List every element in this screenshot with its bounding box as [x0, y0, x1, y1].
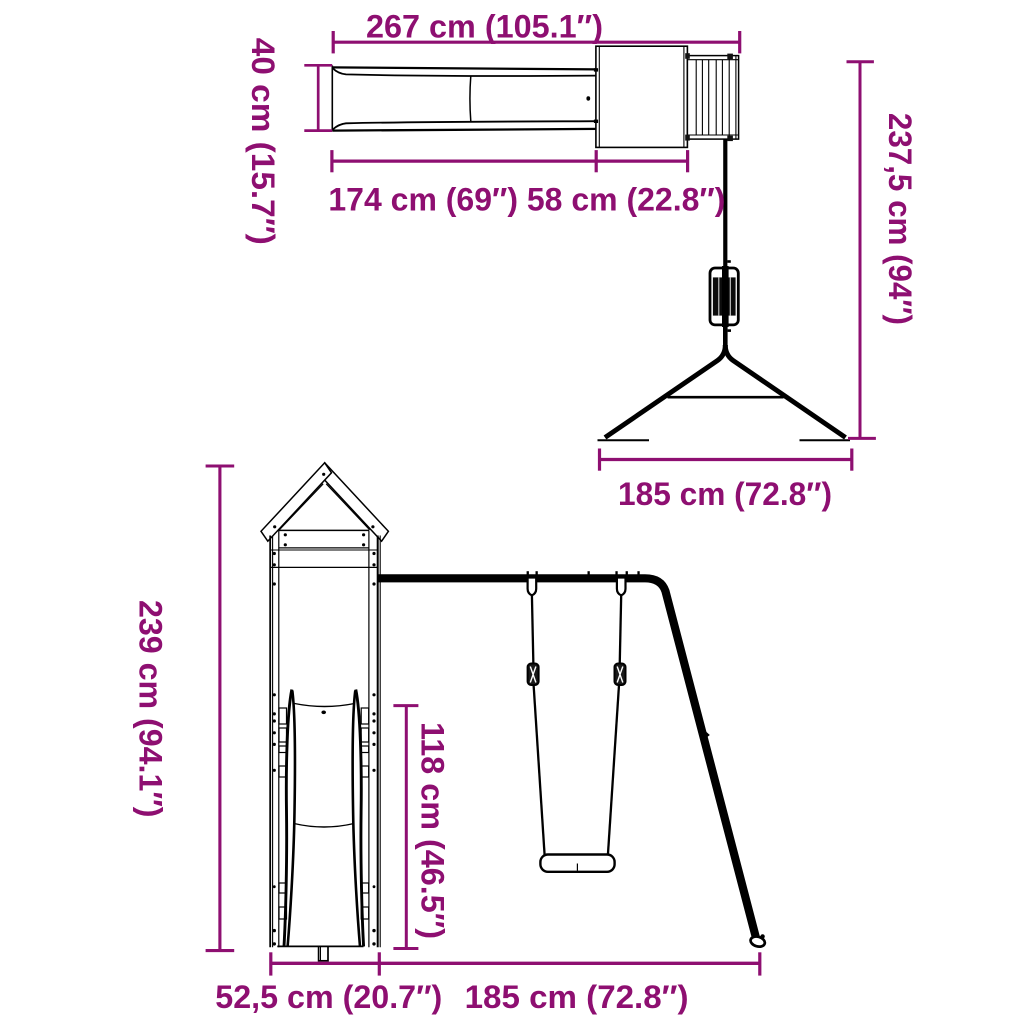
svg-text:185 cm (72.8″): 185 cm (72.8″): [618, 476, 832, 512]
svg-text:267 cm (105.1″): 267 cm (105.1″): [366, 9, 603, 45]
svg-text:52,5 cm (20.7″): 52,5 cm (20.7″): [215, 979, 442, 1015]
svg-text:174 cm (69″) 58 cm (22.8″): 174 cm (69″) 58 cm (22.8″): [328, 181, 725, 217]
svg-text:239 cm (94.1″): 239 cm (94.1″): [133, 600, 169, 818]
svg-text:40 cm (15.7″): 40 cm (15.7″): [245, 38, 281, 245]
svg-text:118 cm (46.5″): 118 cm (46.5″): [415, 722, 451, 939]
svg-text:237,5 cm (94″): 237,5 cm (94″): [882, 113, 918, 325]
svg-text:185 cm (72.8″): 185 cm (72.8″): [465, 979, 689, 1015]
